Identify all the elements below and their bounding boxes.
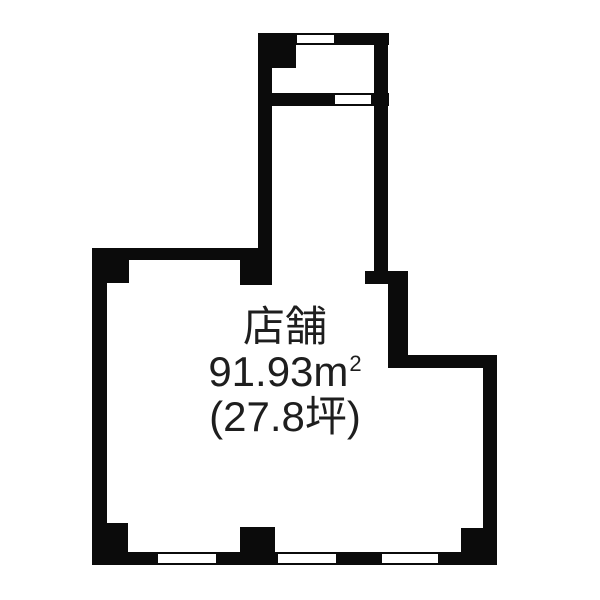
wall-corridor-right bbox=[374, 33, 388, 283]
room-area-tsubo: (27.8坪) bbox=[85, 394, 485, 439]
room-area-unit: m bbox=[313, 348, 348, 395]
window-bottom-3 bbox=[380, 552, 440, 565]
opening-entrance-inner bbox=[333, 93, 373, 106]
pillar-bottom-mid bbox=[240, 527, 275, 565]
room-area-sqm: 91.93m2 bbox=[85, 349, 485, 394]
room-info: 店舗 91.93m2 (27.8坪) bbox=[85, 304, 485, 439]
pillar-corridor-right bbox=[365, 271, 388, 284]
window-bottom-2 bbox=[276, 552, 338, 565]
room-area-value: 91.93 bbox=[208, 348, 313, 395]
window-entrance-top bbox=[295, 33, 336, 45]
room-label: 店舗 bbox=[85, 304, 485, 349]
floorplan-canvas: 店舗 91.93m2 (27.8坪) bbox=[0, 0, 600, 600]
pillar-bottomleft bbox=[92, 523, 128, 565]
room-area-unit-exponent: 2 bbox=[349, 351, 361, 376]
entrance-partition-block bbox=[272, 44, 296, 68]
wall-corridor-left bbox=[258, 33, 272, 248]
pillar-corridor-junction bbox=[240, 248, 272, 285]
window-bottom-1 bbox=[156, 552, 218, 565]
pillar-bottomright bbox=[461, 528, 497, 565]
